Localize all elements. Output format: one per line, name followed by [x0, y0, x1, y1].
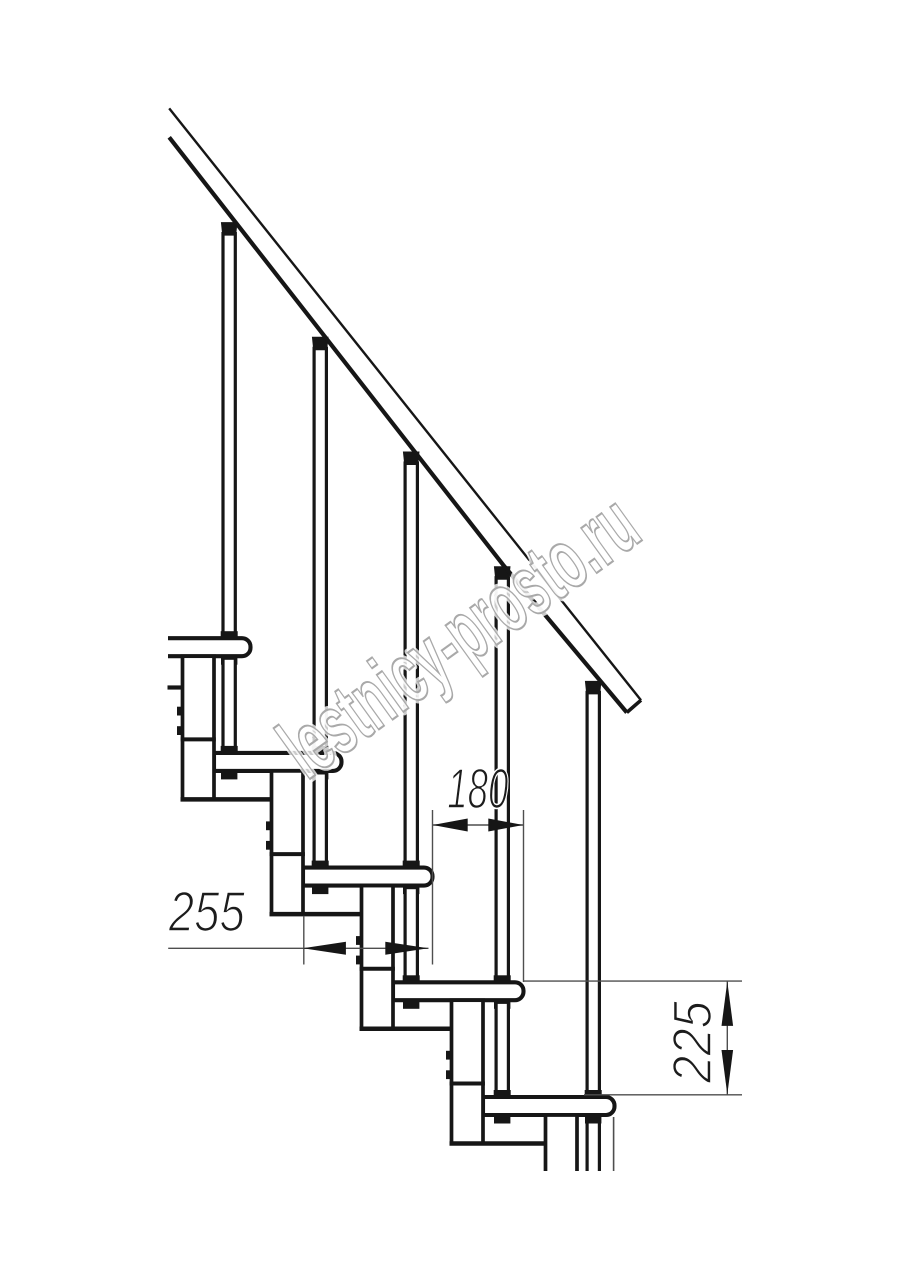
- svg-text:255: 255: [168, 880, 245, 944]
- svg-text:225: 225: [661, 1001, 723, 1084]
- svg-text:180: 180: [447, 757, 508, 821]
